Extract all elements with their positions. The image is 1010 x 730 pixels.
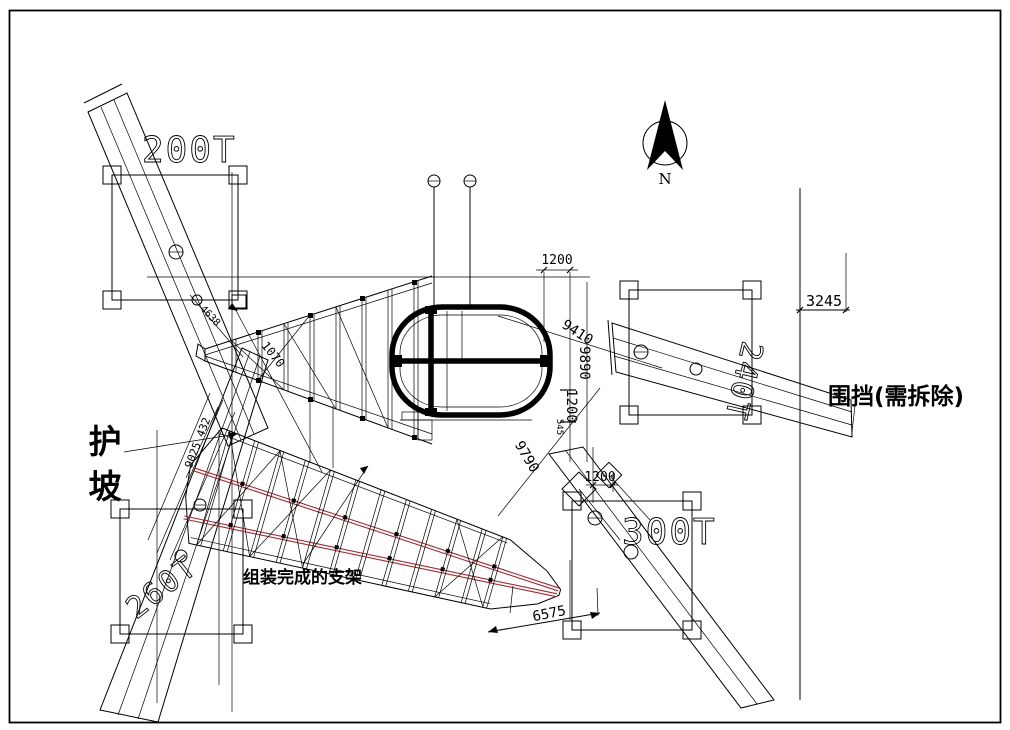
dim-9790-group: 9790	[498, 388, 600, 516]
reference-lines	[147, 172, 662, 712]
fence-group: 3245 围挡(需拆除)	[796, 188, 964, 700]
tunnel-ring	[392, 175, 550, 440]
dim-9890: 9890	[576, 346, 592, 380]
crane-200t: 200T	[84, 84, 268, 446]
dim-4638: 4638	[197, 304, 222, 329]
crane-200t-label: 200T	[142, 130, 237, 171]
drawing-canvas: N 3245 围挡(需拆除) 200T	[0, 0, 1010, 730]
cad-site-plan: N 3245 围挡(需拆除) 200T	[0, 0, 1010, 730]
crane-260t: 260T 9025 432	[100, 348, 268, 722]
drawing-border	[10, 11, 1001, 723]
dim-1200-top: 1200	[541, 253, 572, 268]
dim-545: 545	[554, 419, 564, 435]
dim-3245: 3245	[806, 292, 842, 310]
dim-9790: 9790	[511, 438, 542, 475]
north-arrow-icon: N	[643, 100, 687, 188]
assembled-frame	[170, 422, 578, 645]
dim-6575-group: 6575	[488, 560, 600, 633]
crane-240t-label: 240T	[717, 338, 769, 424]
crane-300t-label: 300T	[622, 512, 717, 553]
crane-260t-label: 260T	[120, 549, 205, 626]
fence-note-label: 围挡(需拆除)	[828, 383, 964, 410]
assembled-frame-label: 组装完成的支架	[243, 567, 362, 588]
dim-1070: 1070	[259, 339, 288, 370]
assembled-frame-label-group: 组装完成的支架	[243, 466, 368, 588]
dim-9410: 9410	[559, 317, 596, 349]
dim-6575: 6575	[531, 603, 567, 625]
slope-protection-label: 护坡	[86, 424, 119, 514]
crane-300t: 300T 1200	[549, 447, 774, 708]
dim-1200-300t: 1200	[584, 470, 615, 485]
north-label: N	[658, 170, 671, 188]
